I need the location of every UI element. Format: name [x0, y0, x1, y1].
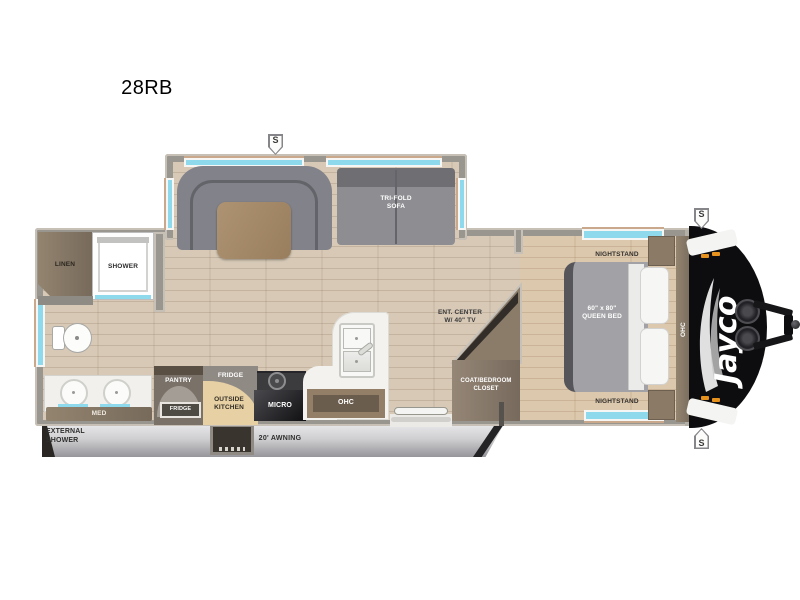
closet-label: COAT/BEDROOM CLOSET — [452, 378, 520, 393]
front-badge-top: S — [694, 208, 709, 229]
slideout-window-right — [458, 178, 466, 230]
med-label: MED — [46, 410, 152, 418]
external-shower-label: EXTERNAL SHOWER — [46, 428, 108, 446]
vanity-drain-left — [72, 391, 75, 394]
wall-stub-top — [514, 228, 523, 254]
ent-center-label: ENT. CENTER W/ 40" TV — [424, 309, 496, 325]
slideout-window-top-right — [326, 158, 442, 167]
nightstand-top-label: NIGHTSTAND — [586, 251, 648, 259]
kitchen-ohc-label: OHC — [307, 399, 385, 408]
nightstand-top — [648, 236, 675, 266]
linen-label: LINEN — [38, 261, 92, 269]
wall-stub-bottom — [499, 402, 504, 426]
shower-glass — [95, 295, 151, 299]
front-badge-bottom: S — [694, 428, 709, 449]
toilet-flush-dot — [75, 336, 79, 340]
nightstand-bottom-label: NIGHTSTAND — [586, 398, 648, 406]
microwave-label: MICRO — [254, 402, 306, 411]
entry-door-handle — [394, 407, 448, 415]
kitchen-sink-drain-bottom — [355, 360, 358, 363]
shower-top-band — [97, 237, 149, 243]
shower-label: SHOWER — [92, 263, 154, 271]
queen-bed-pillow-top — [640, 267, 669, 324]
fridge-label: FRIDGE — [203, 372, 258, 380]
fridge-box-label: FRIDGE — [160, 406, 201, 413]
page-title: 28RB — [112, 76, 182, 101]
bathroom-door-window-left — [36, 299, 45, 367]
entry-step-grille — [219, 447, 245, 451]
stove-burner-dot — [275, 379, 279, 383]
slideout-window-left — [166, 178, 174, 230]
entry-door-step — [391, 417, 451, 422]
trifold-sofa-label: TRI-FOLD SOFA — [341, 195, 451, 211]
hitch-ball — [791, 320, 800, 329]
bath-divider-wall — [154, 232, 165, 312]
queen-bed-pillow-bottom — [640, 328, 669, 385]
queen-bed-label: 60" x 80" QUEEN BED — [572, 305, 632, 321]
dinette-table — [217, 202, 291, 259]
bath-wall-below-linen — [38, 296, 93, 305]
awning-label: 20' AWNING — [250, 435, 310, 444]
vanity-drain-right — [115, 391, 118, 394]
pantry-top-shelf — [154, 366, 203, 375]
pantry-label: PANTRY — [154, 377, 203, 385]
nightstand-bottom — [648, 390, 675, 420]
outside-kitchen-label: OUTSIDE KITCHEN — [203, 396, 255, 412]
kitchen-sink-drain-top — [355, 337, 358, 340]
slide-badge: S — [268, 134, 283, 155]
floorplan-28rb: 28RB EXTERNAL SHOWER 20' AWNING TRI-FOLD… — [0, 0, 800, 600]
